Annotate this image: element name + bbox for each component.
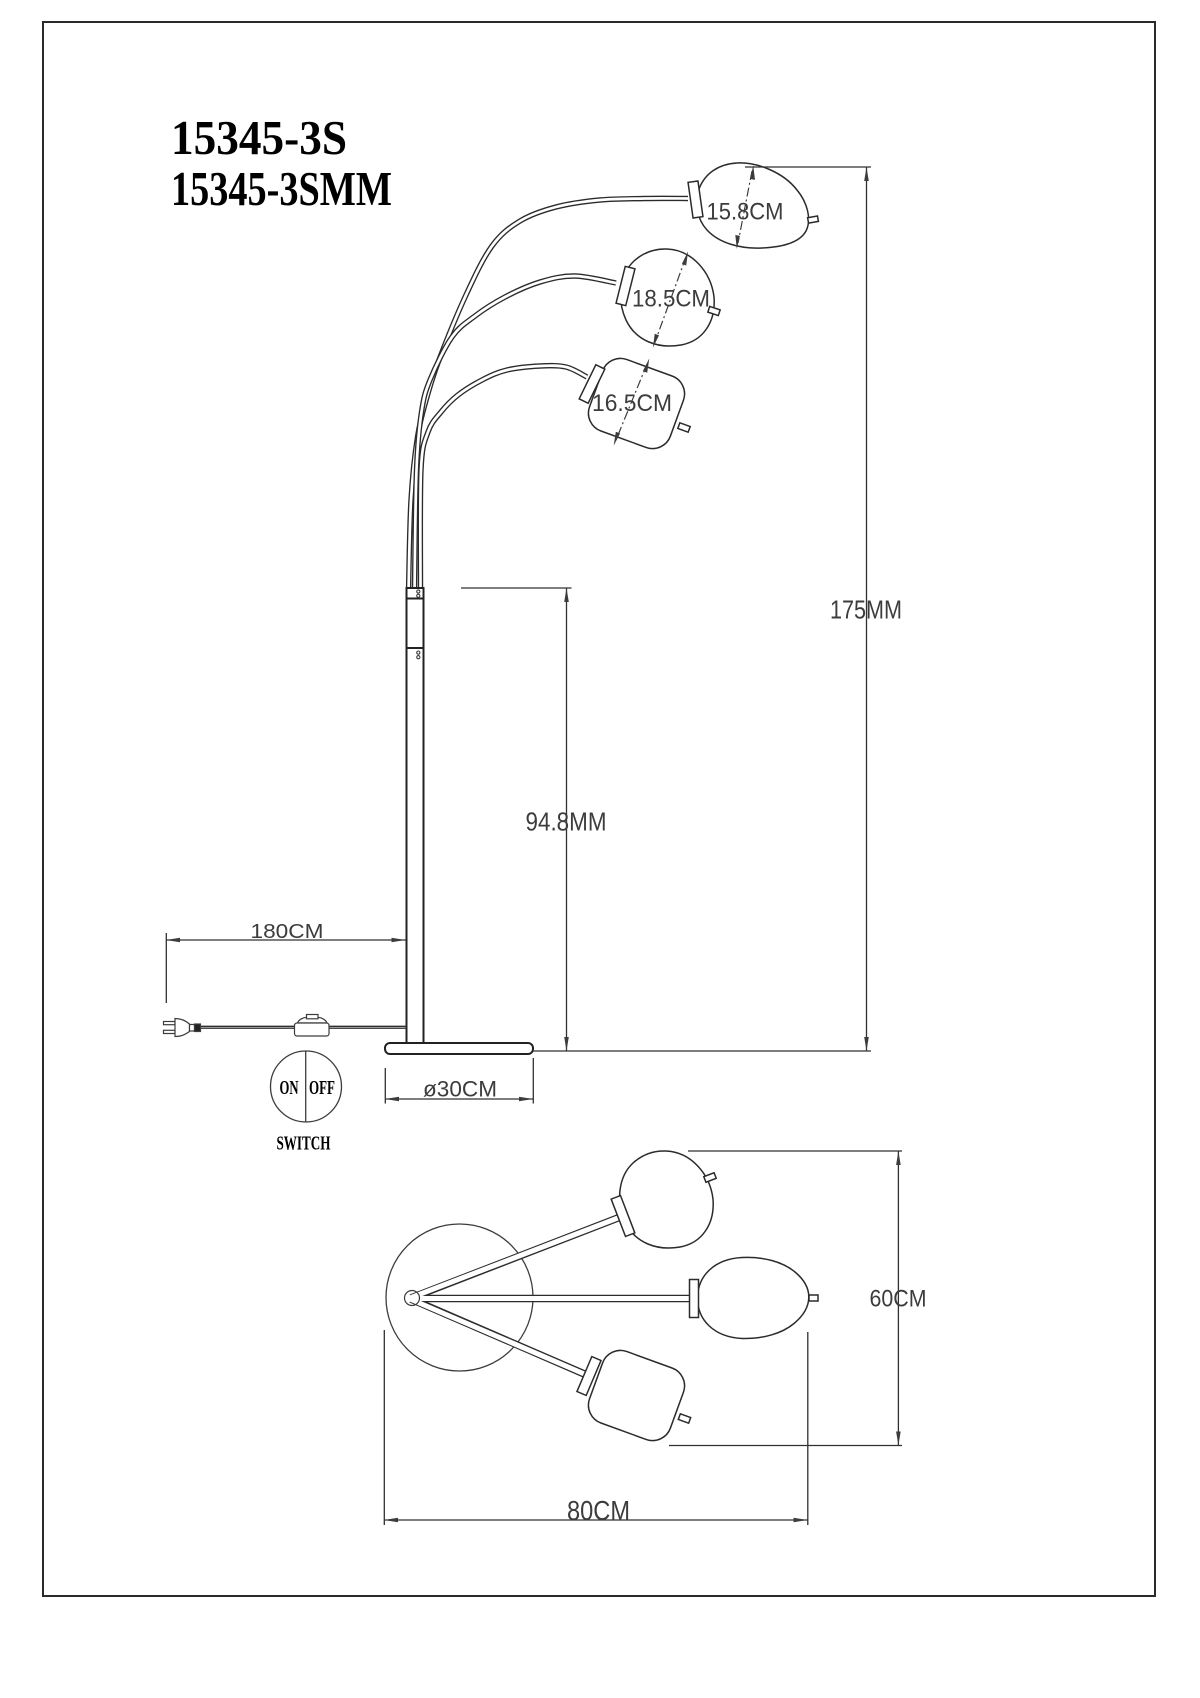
svg-text:SWITCH: SWITCH (277, 1133, 331, 1155)
svg-text:16.5CM: 16.5CM (592, 390, 672, 417)
svg-text:60CM: 60CM (870, 1286, 927, 1313)
svg-text:175MM: 175MM (830, 595, 902, 625)
svg-text:80CM: 80CM (567, 1495, 630, 1526)
svg-text:15.8CM: 15.8CM (707, 199, 784, 226)
svg-text:OFF: OFF (309, 1077, 335, 1099)
svg-text:180CM: 180CM (251, 921, 324, 943)
svg-text:ø30CM: ø30CM (423, 1077, 497, 1102)
svg-text:15345-3S: 15345-3S (171, 110, 347, 165)
svg-text:94.8MM: 94.8MM (526, 807, 607, 837)
svg-text:18.5CM: 18.5CM (632, 286, 710, 313)
svg-text:ON: ON (280, 1077, 299, 1099)
svg-text:15345-3SMM: 15345-3SMM (171, 161, 392, 216)
